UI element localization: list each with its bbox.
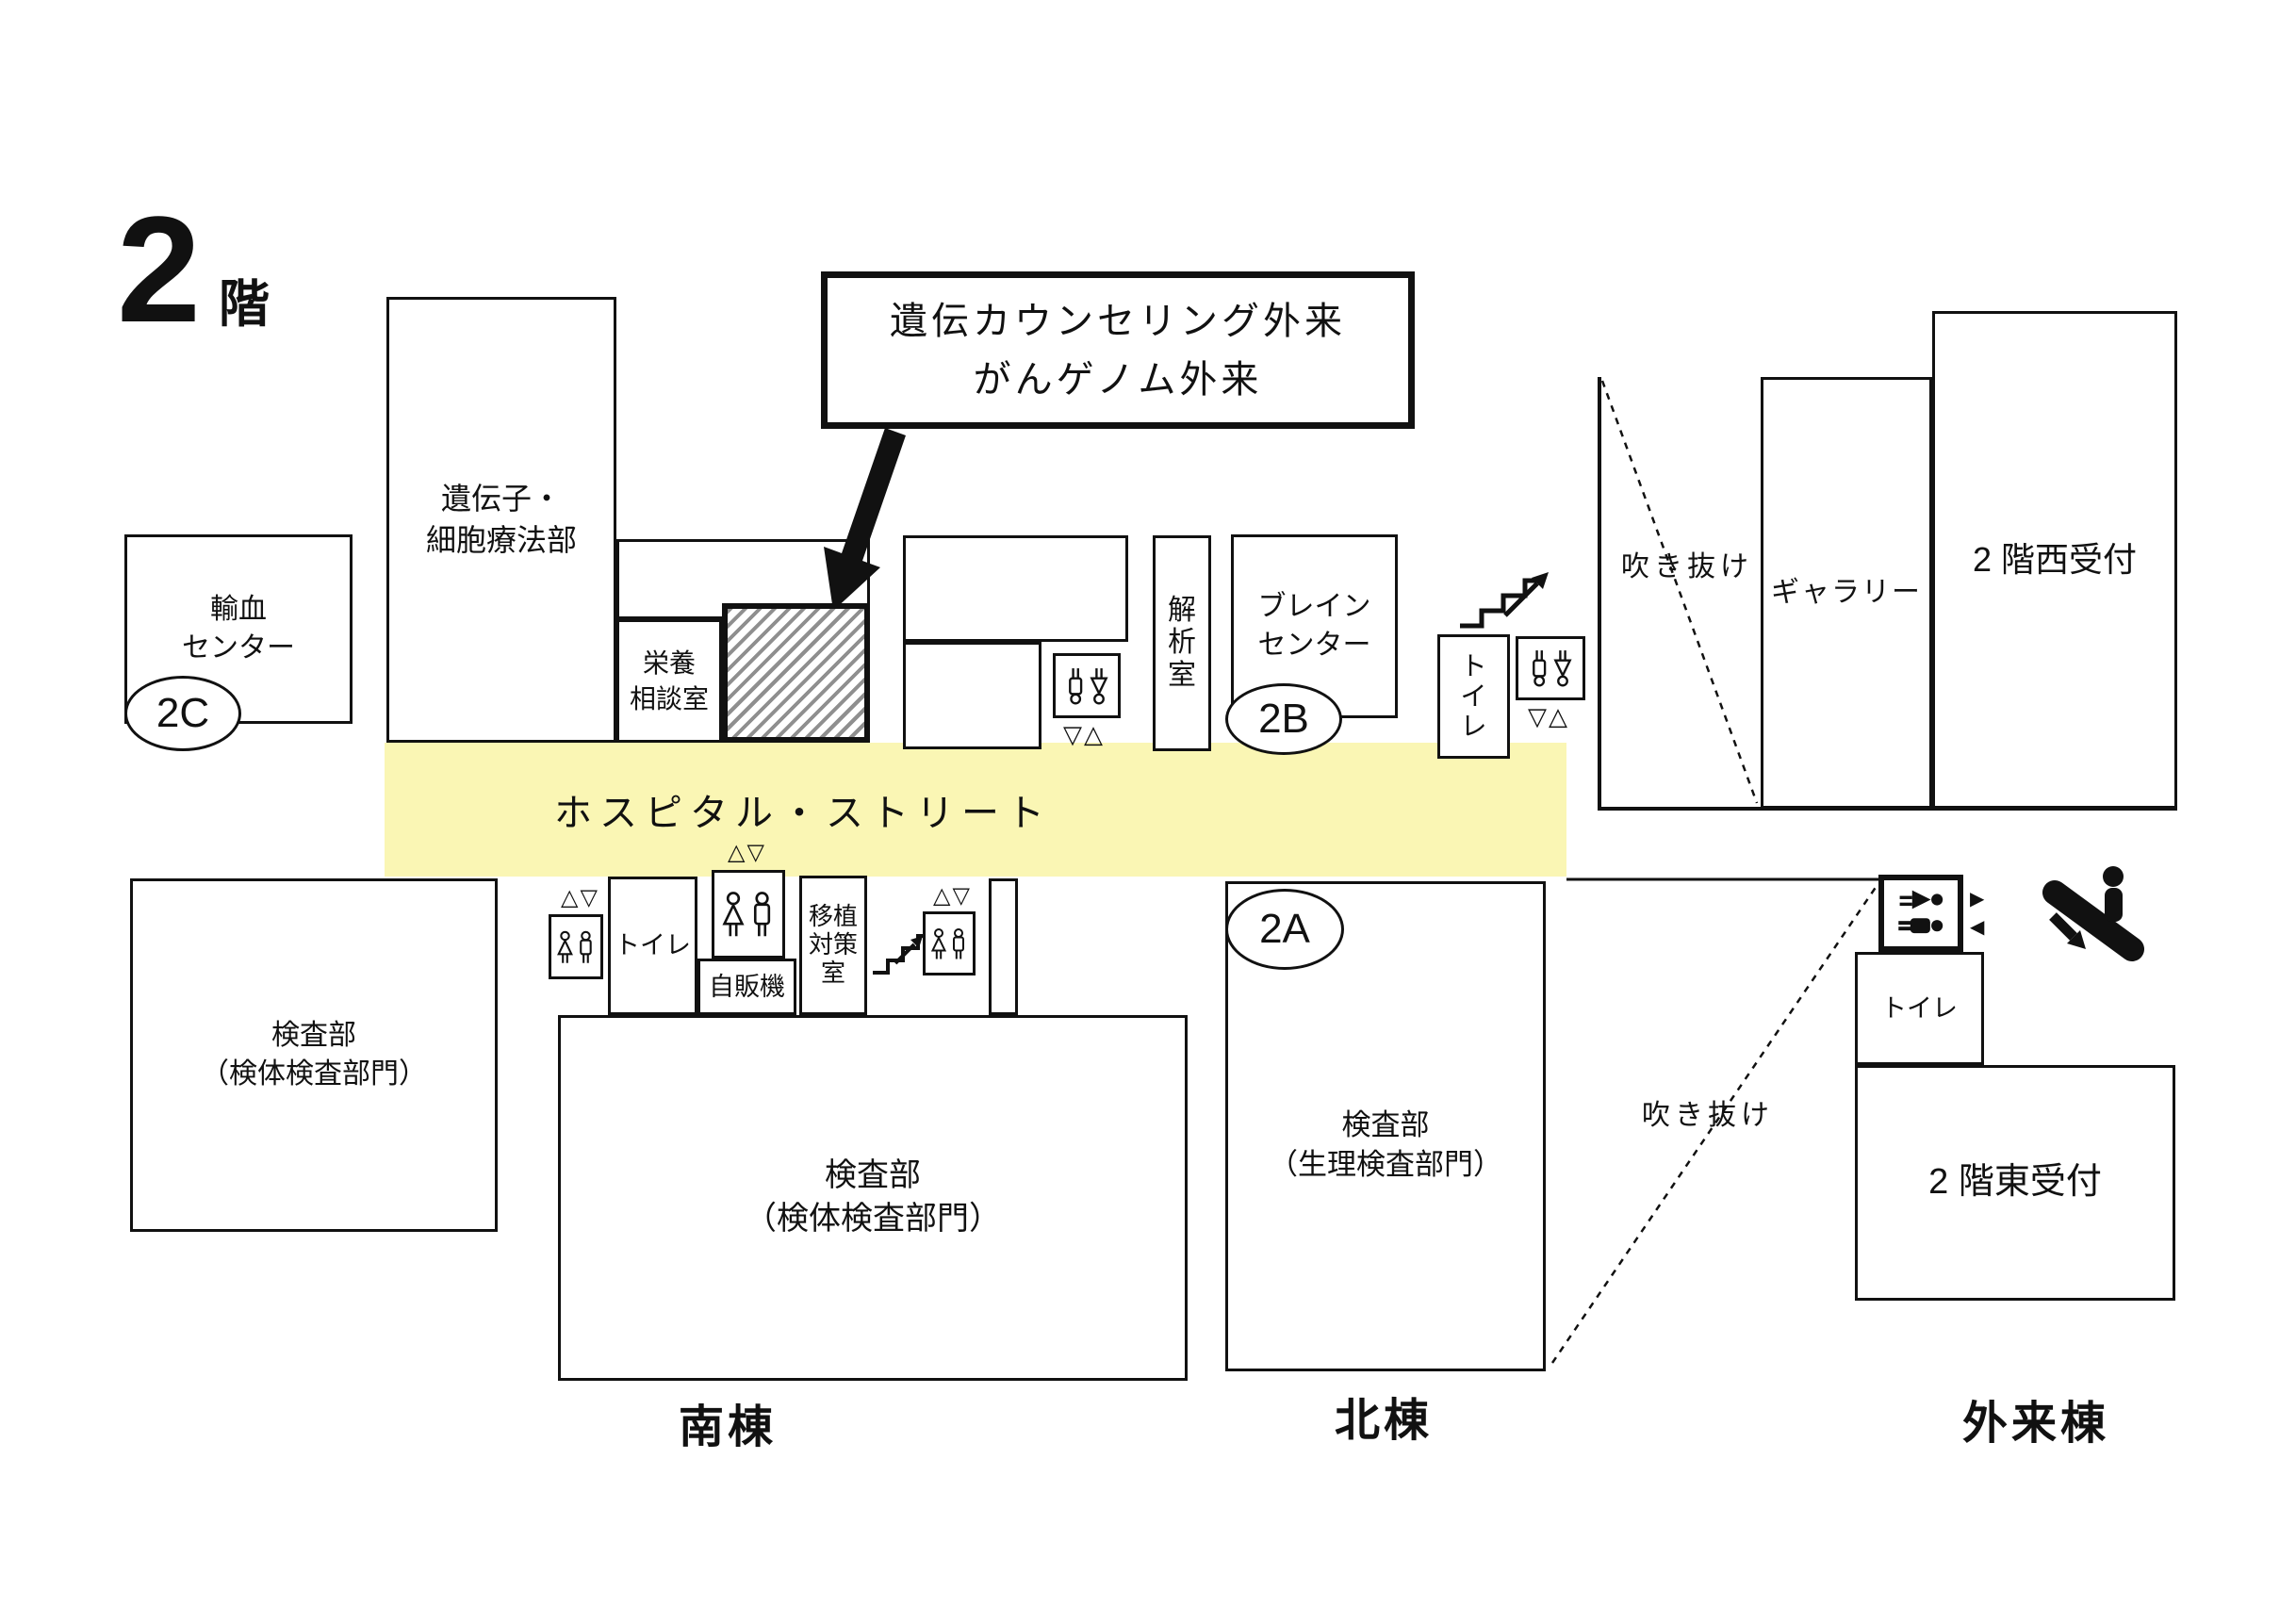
room-lab-west: 検査部 （検体検査部門） bbox=[130, 878, 498, 1232]
elevator-box-center bbox=[1053, 653, 1121, 718]
room-west-reception: 2 階西受付 bbox=[1932, 311, 2177, 809]
room-label: 2 階東受付 bbox=[1928, 1158, 2102, 1206]
stairs-icon bbox=[1460, 572, 1549, 626]
room-lab-south: 検査部 （検体検査部門） bbox=[558, 1015, 1188, 1381]
atrium-east-label: 吹き抜け bbox=[1642, 1091, 1774, 1133]
room-label: 移植 bbox=[809, 903, 858, 931]
stairs-icon bbox=[873, 936, 929, 973]
room-label: 検査部 bbox=[1342, 1106, 1430, 1145]
room-analysis: 解 析 室 bbox=[1153, 535, 1211, 751]
room-label: 解 bbox=[1168, 595, 1196, 628]
building-label-south: 南棟 bbox=[679, 1389, 777, 1455]
room-label: 検査部 bbox=[825, 1155, 921, 1198]
room-east-reception: 2 階東受付 bbox=[1855, 1065, 2175, 1301]
elevator-passengers-icon bbox=[1062, 666, 1111, 706]
room-unlabeled-narrow bbox=[989, 878, 1018, 1015]
room-label: 検査部 bbox=[271, 1017, 356, 1056]
room-label: ギャラリー bbox=[1771, 574, 1922, 613]
floor-number-suffix: 階 bbox=[219, 279, 270, 330]
atrium-west-label: 吹き抜け bbox=[1621, 543, 1753, 584]
elevator-direction-indicator: △▽ bbox=[728, 839, 766, 866]
room-label: 栄養 bbox=[643, 646, 696, 681]
room-vending-machine: 自販機 bbox=[697, 959, 796, 1015]
hospital-street-label: ホスピタル・ストリート bbox=[554, 782, 1052, 837]
room-label: 相談室 bbox=[630, 681, 709, 717]
elevator-direction-indicator: ▽△ bbox=[1528, 702, 1569, 731]
room-nutrition-consult: 栄養 相談室 bbox=[616, 619, 722, 743]
room-label: （検体検査部門） bbox=[745, 1198, 1001, 1241]
room-toilet-north: ト イ レ bbox=[1437, 634, 1510, 759]
room-unlabeled-mid-lower bbox=[903, 642, 1041, 749]
room-label: 析 bbox=[1168, 627, 1196, 660]
elevator-passengers-icon bbox=[554, 929, 598, 965]
door-close-icon: ◀ bbox=[1970, 918, 1984, 937]
room-genetic-counseling-highlighted bbox=[722, 603, 870, 743]
building-label-north: 北棟 bbox=[1335, 1383, 1433, 1449]
escalator-down-icon bbox=[2053, 866, 2132, 949]
room-gene-cell-therapy: 遺伝子・ 細胞療法部 bbox=[386, 297, 616, 743]
room-label: （検体検査部門） bbox=[201, 1056, 427, 1094]
room-gallery: ギャラリー bbox=[1761, 377, 1932, 809]
atrium-west-void-line bbox=[1602, 381, 1757, 803]
floor-map-2f: 2 階 ホスピタル・ストリート 遺伝子・ 細胞療法部 栄養 相談室 輸血 センタ… bbox=[0, 0, 2296, 1623]
restroom-box-east bbox=[1878, 875, 1963, 952]
room-label: 室 bbox=[821, 959, 845, 988]
callout-line: がんゲノム外来 bbox=[974, 351, 1263, 409]
room-label: 自販機 bbox=[709, 970, 785, 1004]
room-transplant-countermeasures: 移植 対策 室 bbox=[799, 876, 867, 1015]
elevator-box-southwest bbox=[549, 914, 603, 979]
zone-badge-2b: 2B bbox=[1225, 683, 1342, 755]
restroom-icon bbox=[1897, 886, 1944, 941]
room-label: センター bbox=[1258, 627, 1371, 665]
zone-badge-2a: 2A bbox=[1225, 889, 1344, 970]
floor-number: 2 bbox=[117, 194, 201, 345]
room-label: 2 階西受付 bbox=[1973, 537, 2137, 583]
elevator-passengers-icon bbox=[1526, 648, 1575, 688]
elevator-box-southeast bbox=[923, 911, 976, 975]
room-label: レ bbox=[1460, 712, 1486, 742]
restroom-icon bbox=[718, 887, 779, 942]
hospital-street: ホスピタル・ストリート bbox=[385, 743, 1566, 877]
room-label: 細胞療法部 bbox=[426, 520, 577, 561]
callout-genetic-counseling: 遺伝カウンセリング外来 がんゲノム外来 bbox=[821, 271, 1415, 429]
room-label: トイレ bbox=[1881, 992, 1958, 1025]
room-label: 遺伝子・ bbox=[441, 479, 562, 519]
room-label: 室 bbox=[1168, 660, 1196, 693]
elevator-passengers-icon bbox=[928, 926, 970, 961]
room-toilet-east: トイレ bbox=[1855, 952, 1984, 1065]
elevator-direction-indicator: △▽ bbox=[933, 882, 972, 910]
room-label: 対策 bbox=[809, 931, 858, 959]
zone-badge-2c: 2C bbox=[124, 676, 241, 751]
elevator-box-north bbox=[1516, 636, 1585, 700]
room-label: ブレイン bbox=[1258, 588, 1371, 627]
building-label-outpatient: 外来棟 bbox=[1962, 1385, 2109, 1451]
elevator-direction-indicator: ▽△ bbox=[1063, 720, 1105, 749]
room-label: トイレ bbox=[615, 928, 691, 962]
restroom-box-center bbox=[712, 870, 785, 959]
room-unlabeled-mid-wide bbox=[903, 535, 1128, 642]
elevator-direction-indicator: △▽ bbox=[561, 884, 599, 911]
room-label: ト bbox=[1460, 651, 1486, 681]
room-label: 輸血 bbox=[210, 591, 267, 630]
room-toilet-south: トイレ bbox=[608, 877, 697, 1015]
room-label: イ bbox=[1460, 681, 1486, 712]
callout-line: 遺伝カウンセリング外来 bbox=[890, 292, 1346, 351]
room-label: （生理検査部門） bbox=[1269, 1145, 1502, 1185]
room-label: センター bbox=[182, 630, 295, 668]
door-open-icon: ▶ bbox=[1970, 890, 1984, 909]
